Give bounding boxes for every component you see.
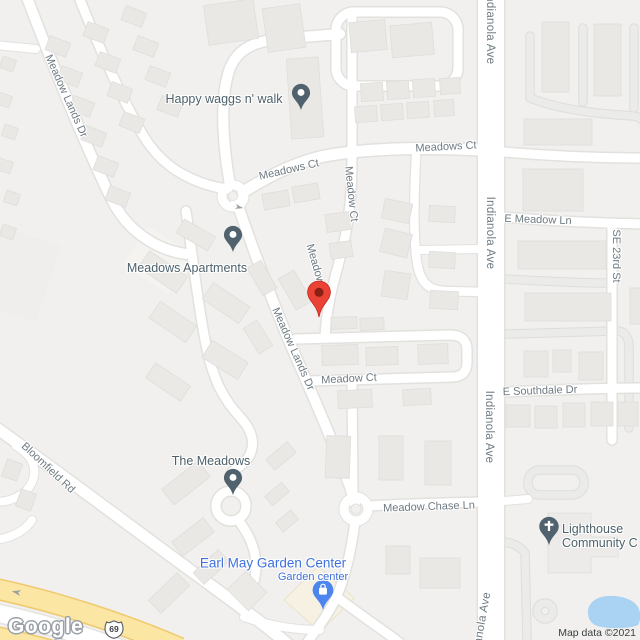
meadows-apartments-label[interactable]: Meadows Apartments — [127, 261, 247, 275]
lighthouse-community-church-label[interactable]: LighthouseCommunity C — [562, 522, 638, 550]
us-route-69-shield: 69 — [104, 620, 124, 639]
map-attribution: Map data ©2021 — [558, 627, 636, 639]
earl-may-garden-center-subtitle[interactable]: Garden center — [278, 571, 348, 583]
earl-may-garden-center-label[interactable]: Earl May Garden Center — [200, 556, 346, 571]
the-meadows-label[interactable]: The Meadows — [172, 454, 251, 468]
google-logo[interactable]: Google — [8, 615, 83, 639]
selected-location-pin[interactable] — [306, 280, 332, 323]
earl-may-garden-center-pin[interactable] — [311, 579, 335, 616]
route-shield-number: 69 — [104, 624, 124, 634]
happy-waggs-n-walk-pin[interactable] — [291, 83, 311, 116]
map-canvas[interactable]: Meadow Lands DrMeadows CtMeadow CtMeadow… — [0, 0, 640, 640]
the-meadows-pin[interactable] — [223, 468, 243, 501]
lighthouse-community-church-pin[interactable] — [538, 516, 560, 551]
happy-waggs-n-walk-label[interactable]: Happy waggs n' walk — [165, 92, 282, 106]
meadows-apartments-pin[interactable] — [223, 225, 243, 258]
